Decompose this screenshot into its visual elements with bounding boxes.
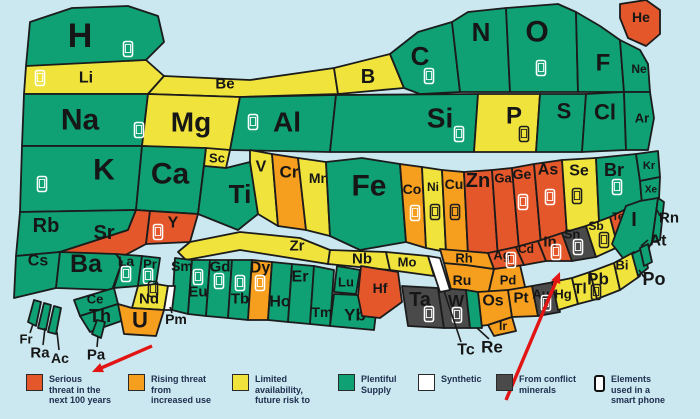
legend-swatch-serious-threat — [26, 374, 43, 391]
outside-label-Pm: Pm — [165, 311, 187, 327]
pointer-line-Ac — [57, 332, 59, 350]
element-cell-F: F — [576, 12, 624, 92]
element-cell-Y: Y — [146, 211, 198, 244]
element-symbol-Ru: Ru — [453, 272, 472, 288]
element-cell-Ar: Ar — [624, 92, 654, 150]
element-cell-Mg: Mg — [135, 94, 241, 150]
element-cell-Be: Be — [148, 68, 338, 97]
element-cell-O: O — [506, 4, 578, 92]
legend-label-synthetic: Synthetic — [441, 374, 482, 385]
element-symbol-Rh: Rh — [455, 251, 472, 266]
element-symbol-Eu: Eu — [188, 284, 207, 301]
element-cell-Li: Li — [24, 60, 164, 94]
legend-item-synthetic: Synthetic — [418, 374, 482, 391]
element-symbol-Cu: Cu — [445, 176, 464, 192]
element-symbol-Zr: Zr — [290, 238, 305, 255]
element-symbol-Ce: Ce — [87, 292, 104, 307]
legend-swatch-rising-threat — [128, 374, 145, 391]
element-symbol-K: K — [93, 154, 115, 187]
element-symbol-Rb: Rb — [33, 215, 60, 237]
element-symbol-Cr: Cr — [280, 163, 299, 182]
pointer-line-Ra — [43, 328, 45, 345]
legend-item-plentiful-supply: PlentifulSupply — [338, 374, 397, 395]
legend-item-rising-threat: Rising threatfromincreased use — [128, 374, 211, 406]
element-symbol-H: H — [68, 17, 93, 55]
element-symbol-Pb: Pb — [587, 270, 609, 289]
element-symbol-Ne: Ne — [631, 62, 647, 76]
element-symbol-As: As — [538, 162, 559, 179]
element-cell-Lu: Lu — [334, 266, 360, 294]
element-symbol-Ge: Ge — [513, 166, 532, 182]
element-symbol-Ar: Ar — [635, 111, 649, 126]
element-cell-Ti: Ti — [198, 162, 258, 230]
legend-swatch-synthetic — [418, 374, 435, 391]
element-symbol-N: N — [472, 17, 491, 47]
element-symbol-Ba: Ba — [70, 250, 103, 278]
element-shape-Si — [330, 94, 478, 152]
legend-label-rising-threat: Rising threatfromincreased use — [151, 374, 211, 406]
element-symbol-Cl: Cl — [594, 100, 616, 125]
element-symbol-Ca: Ca — [151, 158, 190, 191]
element-symbol-Bi: Bi — [616, 258, 629, 273]
element-symbol-Dy: Dy — [250, 260, 271, 277]
element-symbol-Si: Si — [427, 103, 453, 134]
element-symbol-S: S — [557, 99, 572, 124]
outside-label-Pa: Pa — [87, 347, 106, 364]
element-cell-Nd: Nd — [132, 282, 168, 311]
legend-swatch-plentiful-supply — [338, 374, 355, 391]
legend-swatch-from-conflict-minerals — [496, 374, 513, 391]
element-scarcity-infographic: HLiBeBCNOFNeHeNaMgAlSiPSClArKCaScTiVCrMn… — [0, 0, 700, 419]
element-cell-N: N — [452, 8, 510, 92]
legend-swatch-limited-availability — [232, 374, 249, 391]
element-symbol-Pt: Pt — [514, 290, 529, 307]
outside-label-Rn: Rn — [659, 210, 679, 227]
scarcity-periodic-table-svg: HLiBeBCNOFNeHeNaMgAlSiPSClArKCaScTiVCrMn… — [0, 0, 700, 419]
element-symbol-Fe: Fe — [351, 170, 386, 203]
smartphone-icon — [594, 375, 605, 392]
element-symbol-Tb: Tb — [231, 291, 249, 308]
element-symbol-Li: Li — [79, 70, 93, 87]
element-symbol-Cd: Cd — [518, 242, 534, 256]
element-cell-K: K — [20, 146, 142, 212]
element-cell-Cs: Cs — [14, 252, 60, 298]
element-symbol-Y: Y — [168, 215, 179, 232]
element-symbol-In: In — [543, 234, 556, 251]
element-symbol-Tm: Tm — [312, 304, 333, 320]
element-symbol-He: He — [632, 9, 650, 25]
legend-label-limited-availability: Limitedavailability,future risk to — [255, 374, 310, 406]
element-symbol-Ta: Ta — [409, 289, 432, 311]
element-cell-Kr: Kr — [636, 151, 660, 181]
element-cell-Ba: Ba — [56, 250, 122, 290]
element-cell-Na: Na — [22, 94, 148, 146]
element-symbol-Al: Al — [273, 107, 301, 138]
element-cell-H: H — [26, 6, 164, 68]
element-symbol-F: F — [596, 50, 611, 77]
element-symbol-B: B — [361, 66, 375, 88]
element-symbol-O: O — [525, 16, 548, 49]
element-symbol-V: V — [256, 159, 267, 176]
element-symbol-Ti: Ti — [229, 179, 252, 209]
element-symbol-Os: Os — [482, 293, 503, 310]
legend-label-from-conflict-minerals: From conflictminerals — [519, 374, 576, 395]
element-symbol-Ir: Ir — [499, 319, 507, 333]
element-symbol-Se: Se — [569, 163, 589, 180]
element-symbol-Mo: Mo — [398, 255, 417, 270]
element-symbol-Er: Er — [292, 269, 309, 286]
element-symbol-Co: Co — [403, 181, 422, 197]
element-symbol-Mg: Mg — [171, 107, 211, 138]
legend-item-from-conflict-minerals: From conflictminerals — [496, 374, 576, 395]
outside-label-At: At — [650, 233, 668, 250]
outside-label-Ra: Ra — [30, 345, 50, 362]
legend-item-limited-availability: Limitedavailability,future risk to — [232, 374, 310, 406]
outside-label-Tc: Tc — [457, 342, 475, 359]
element-symbol-Sb: Sb — [588, 219, 603, 233]
legend-label-elements-used-in-smartphone: Elementsused in asmart phone — [611, 374, 665, 406]
legend-item-elements-used-in-smartphone: Elementsused in asmart phone — [594, 374, 665, 406]
element-symbol-Sm: Sm — [171, 258, 193, 274]
element-cell-Ta: Ta — [402, 286, 444, 328]
element-shape-H — [26, 6, 164, 68]
element-symbol-Hf: Hf — [373, 280, 388, 296]
element-cell-Hf: Hf — [358, 266, 402, 318]
outside-label-Po: Po — [642, 269, 665, 289]
element-cell-Ne: Ne — [620, 40, 650, 92]
outside-label-Ac: Ac — [51, 350, 69, 366]
element-cell-He: He — [620, 0, 660, 46]
element-symbol-Sc: Sc — [209, 151, 225, 166]
element-cell-Si: Si — [330, 94, 478, 152]
element-symbol-I: I — [631, 209, 637, 231]
element-symbol-Nb: Nb — [352, 251, 372, 268]
element-symbol-C: C — [411, 41, 430, 71]
element-symbol-Hg: Hg — [554, 287, 571, 302]
pointer-line-Pa — [97, 336, 98, 347]
outside-label-Re: Re — [481, 338, 503, 357]
element-symbol-P: P — [506, 103, 522, 130]
element-cell-U: U — [118, 304, 164, 336]
element-cell-Al: Al — [230, 95, 336, 152]
element-symbol-Ho: Ho — [269, 294, 291, 311]
element-cell-Sc: Sc — [204, 148, 230, 168]
element-symbol-Pd: Pd — [500, 273, 517, 288]
element-symbol-U: U — [132, 308, 148, 333]
element-symbol-Be: Be — [215, 76, 234, 93]
element-symbol-Sr: Sr — [93, 222, 114, 244]
element-symbol-Zn: Zn — [466, 170, 490, 192]
element-symbol-Na: Na — [61, 104, 100, 137]
legend-label-plentiful-supply: PlentifulSupply — [361, 374, 397, 395]
element-cell-P: P — [474, 94, 540, 152]
element-symbol-Ni: Ni — [427, 180, 439, 194]
element-cell-Ca: Ca — [136, 146, 206, 214]
element-shape-Be — [148, 68, 338, 97]
element-cell-Cl: Cl — [582, 92, 626, 152]
legend-label-serious-threat: Seriousthreat in thenext 100 years — [49, 374, 111, 406]
element-symbol-Kr: Kr — [643, 160, 656, 172]
element-symbol-Cs: Cs — [28, 253, 49, 270]
element-symbol-Lu: Lu — [338, 275, 354, 290]
element-symbol-Ga: Ga — [494, 171, 512, 186]
element-cell-Fe: Fe — [326, 158, 406, 250]
element-symbol-Br: Br — [604, 160, 624, 180]
element-symbol-Xe: Xe — [645, 185, 658, 196]
legend-item-serious-threat: Seriousthreat in thenext 100 years — [26, 374, 111, 406]
element-symbol-Tl: Tl — [573, 281, 586, 298]
element-cell-S: S — [536, 94, 586, 152]
